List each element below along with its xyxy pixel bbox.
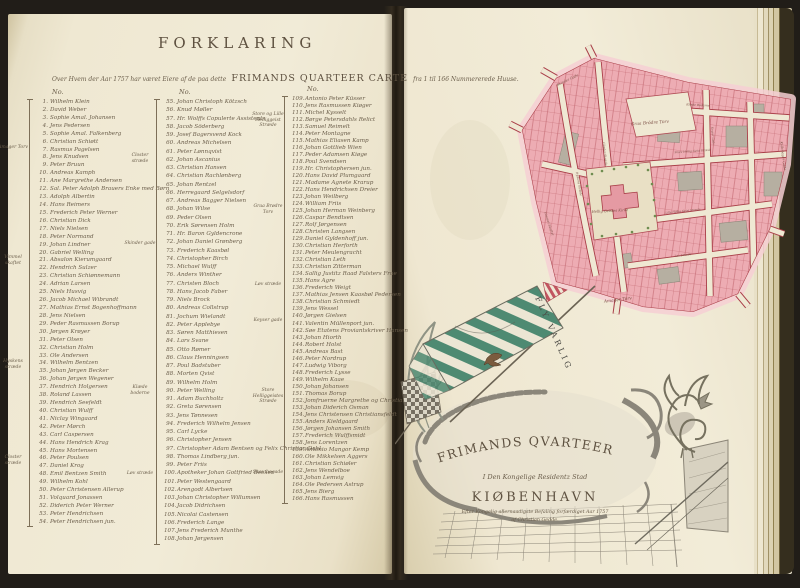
owner-name: Wilhelm Holm	[177, 380, 217, 386]
owner-entry: 49.Wilhelm Kohl	[37, 479, 157, 487]
owner-entry: 105.Nicolai Castensen	[164, 512, 288, 520]
owner-number: 29.	[37, 321, 50, 327]
owner-name: Frederich Peter Werner	[50, 210, 117, 216]
owner-name: Peter Friis	[177, 462, 207, 468]
owner-number: 93.	[164, 413, 177, 419]
owner-number: 37.	[37, 384, 50, 390]
owner-entry: 26.Jacob Michael Wibrandt	[37, 297, 157, 305]
owner-name: Hans Jacob Faber	[177, 289, 227, 295]
owner-number: 77.	[164, 281, 177, 287]
owner-entry: 32.Christian Holm	[37, 345, 157, 353]
owner-name: Samuel Reimelt	[305, 124, 350, 130]
owner-number: 62.	[164, 157, 177, 163]
owner-name: Christen Bloch	[177, 281, 219, 287]
owner-number: 164.	[292, 482, 305, 488]
owner-name: Peder Rasmussen Borup	[50, 321, 119, 327]
owner-number: 20.	[37, 250, 50, 256]
owner-entry: 75.Michael Wulff	[164, 264, 288, 272]
owner-entry: 120.Hans David Plumgaard	[292, 173, 394, 180]
owner-entry: 72.Johan Daniel Grønberg	[164, 239, 288, 247]
owner-name: Niels Brock	[177, 297, 210, 303]
owner-entry: 88.Morten Qvist	[164, 371, 288, 379]
owner-number: 4.	[37, 123, 50, 129]
owner-name: Wilhelm Klein	[50, 99, 90, 105]
owner-entry: 27.Mathias Ernst Bogenhoffmann	[37, 305, 157, 313]
owner-entry: 162.Jens Wendelboe	[292, 468, 394, 475]
owner-name: Poul Badstuber	[177, 363, 220, 369]
owner-name: Søe Etatens Proviantskriver Hansen	[305, 328, 408, 334]
column-number-header: No.	[307, 85, 319, 93]
owner-entry: 66.Herregaard Selgelsdorf	[164, 190, 288, 198]
owner-name: Christian Leth	[305, 257, 346, 263]
owner-entry: 69.Peder Olsen	[164, 215, 288, 223]
owner-entry: 142.Søe Etatens Proviantskriver Hansen	[292, 328, 394, 335]
graabroedretorv-square	[626, 92, 696, 137]
owner-entry: 35.Johan Jørgen Becker	[37, 368, 157, 376]
owner-name: Peter Nordrup	[305, 356, 346, 362]
owner-name: Josef Bagersvend Kock	[177, 132, 242, 138]
owner-name: Niels Nielsen	[50, 226, 88, 232]
owner-number: 79.	[164, 297, 177, 303]
owner-name: Christian Schiøler	[305, 461, 356, 467]
owner-name: Christian Zitterman	[305, 264, 361, 270]
owner-name: Mathias Jensen Kaasbøl Pedersen	[305, 292, 401, 298]
owner-name: Hans Mortensen	[50, 448, 97, 454]
owner-number: 131.	[292, 250, 305, 256]
owner-number: 97.	[164, 446, 177, 452]
owner-name: Thomas Lindberg jun.	[177, 454, 239, 460]
owner-entry: 104.Jacob Didrichsen	[164, 503, 288, 511]
owner-name: Mathias Eliasen Kamp	[305, 138, 369, 144]
owner-entry: 101.Peter Westengaard	[164, 479, 288, 487]
owner-name: Andreas Michelsen	[177, 140, 231, 146]
subtitle-prefix: Over Hvem der Aar 1757 har været Eiere a…	[52, 76, 226, 83]
owner-number: 22.	[37, 265, 50, 271]
owner-name: Jens Rasmussen Kiøger	[305, 103, 372, 109]
owner-name: Johan Daniel Grønberg	[177, 239, 242, 245]
owner-number: 108.	[164, 536, 177, 542]
owner-number: 3.	[37, 115, 50, 121]
owner-name: Christopher Jensen	[177, 437, 232, 443]
owner-entry: 1.Wilhelm Klein	[37, 99, 157, 107]
owner-entry: 116.Johan Gottlieb Wien	[292, 145, 394, 152]
owner-number: 85.	[164, 347, 177, 353]
owner-name: Antonio Mangor Kemp	[305, 447, 369, 453]
owner-name: Jochum Wielandt	[177, 314, 225, 320]
owner-number: 103.	[164, 495, 177, 501]
owner-number: 101.	[164, 479, 177, 485]
owner-name: Emil Bentzen Smith	[50, 471, 106, 477]
owner-number: 155.	[292, 419, 305, 425]
street-group-label: Store og Lille Helliggeist Stræde	[252, 112, 284, 129]
owner-entry: 124.William Friis	[292, 201, 394, 208]
owner-name: Gabriel Welling	[50, 250, 94, 256]
owner-name: Andreas Bagger Nielsen	[177, 198, 246, 204]
owner-number: 163.	[292, 475, 305, 481]
owner-number: 31.	[37, 337, 50, 343]
owner-number: 120.	[292, 173, 305, 179]
owner-name: Peder Adamsen Kiøge	[305, 152, 367, 158]
owner-number: 44.	[37, 440, 50, 446]
owner-number: 113.	[292, 124, 305, 130]
owner-entry: 119.Hr. Christophersen jun.	[292, 166, 394, 173]
owner-entry: 164.Ole Pedersen Astrup	[292, 482, 394, 489]
owner-number: 91.	[164, 396, 177, 402]
owner-number: 73.	[164, 248, 177, 254]
owner-number: 94.	[164, 421, 177, 427]
owner-name: Antonio Peter Küsser	[305, 96, 365, 102]
owner-entry: 121.Madame Agnete Krarup	[292, 180, 394, 187]
owner-number: 38.	[37, 392, 50, 398]
street-group-label: Løv stræde	[124, 471, 156, 477]
owner-number: 66.	[164, 190, 177, 196]
owner-entry: 103.Johan Christopher Willumsen	[164, 495, 288, 503]
owner-name: Wilhelm Kaae	[305, 377, 344, 383]
owner-number: 96.	[164, 437, 177, 443]
owner-number: 41.	[37, 416, 50, 422]
owner-name: Hans Hendrich Krag	[50, 440, 109, 446]
owner-number: 15.	[37, 210, 50, 216]
owner-entry: 108.Johan Jørgensen	[164, 536, 288, 544]
owner-number: 48.	[37, 471, 50, 477]
owner-entry: 85.Otto Rømer	[164, 347, 288, 355]
owner-name: Christian Dick	[50, 218, 91, 224]
owner-entry: 140.Jørgen Gielsen	[292, 313, 394, 320]
owner-entry: 122.Hans Hendrichsen Dreier	[292, 187, 394, 194]
owner-number: 9.	[37, 162, 50, 168]
owner-name: Mathias Ernst Bogenhoffmann	[50, 305, 137, 311]
owner-name: Frederich Wulffsmidt	[305, 433, 365, 439]
owner-number: 8.	[37, 154, 50, 160]
owner-number: 43.	[37, 432, 50, 438]
owner-number: 121.	[292, 180, 305, 186]
column-number-header: No.	[179, 88, 191, 96]
owner-entry: 132.Christian Leth	[292, 257, 394, 264]
owner-entry: 84.Lars Svane	[164, 338, 288, 346]
owner-number: 89.	[164, 380, 177, 386]
owner-number: 61.	[164, 149, 177, 155]
owner-name: Otto Rømer	[177, 347, 210, 353]
owner-entry: 64.Christian Rachlønberg	[164, 173, 288, 181]
owner-number: 78.	[164, 289, 177, 295]
owner-name: Ole Pedersen Astrup	[305, 482, 363, 488]
owner-number: 23.	[37, 273, 50, 279]
owner-entry: 137.Mathias Jensen Kaasbøl Pedersen	[292, 292, 394, 299]
owner-name: Thomas Borup	[305, 391, 346, 397]
owner-number: 156.	[292, 426, 305, 432]
owner-entry: 155.Anders Kieldgaard	[292, 419, 394, 426]
owner-number: 12.	[37, 186, 50, 192]
column-bracket	[156, 100, 160, 544]
owner-number: 142.	[292, 328, 305, 334]
owner-number: 98.	[164, 454, 177, 460]
owner-number: 28.	[37, 313, 50, 319]
owner-name: Hendrich Holgersen	[50, 384, 108, 390]
owner-entry: 3.Sophie Amal. Johansen	[37, 115, 157, 123]
owner-number: 114.	[292, 131, 305, 137]
owner-name: Roland Lassen	[50, 392, 91, 398]
owner-name: Johan Jørgensen	[177, 536, 224, 542]
owner-number: 30.	[37, 329, 50, 335]
owner-name: Michel Kysselt	[305, 110, 346, 116]
owner-number: 76.	[164, 272, 177, 278]
owner-entry: 114.Peter Montagne	[292, 131, 394, 138]
owner-name: Jens Nielsen	[50, 313, 85, 319]
owner-name: Nicolai Castensen	[177, 512, 228, 518]
owner-number: 53.	[37, 511, 50, 517]
owner-number: 105.	[164, 512, 177, 518]
subtitle-emphasis: FRIMANDS QUARTEER CARTE	[231, 73, 408, 84]
owner-name: Anders Kieldgaard	[305, 419, 358, 425]
owner-entry: 53.Peter Hendrichsen	[37, 511, 157, 519]
owner-entry: 118.Poul Svendsen	[292, 159, 394, 166]
subtitle-line: Over Hvem der Aar 1757 har været Eiere a…	[52, 66, 519, 85]
owner-name: Peter Hendrichsen jun.	[50, 519, 116, 525]
street-group-label: Løv stræde	[252, 282, 284, 288]
owner-name: Peter Christensen Allerup	[50, 487, 124, 493]
owner-entry: 143.Johan Hiorth	[292, 335, 394, 342]
owner-number: 35.	[37, 368, 50, 374]
owner-name: Hans Hendrichsen Dreier	[305, 187, 378, 193]
owner-name: Anders Winther	[177, 272, 222, 278]
owner-entry: 131.Peter Meulengracht	[292, 250, 394, 257]
owner-entry: 28.Jens Nielsen	[37, 313, 157, 321]
owner-number: 128.	[292, 229, 305, 235]
owner-entry: 126.Caspar Bendtsen	[292, 215, 394, 222]
owner-entry: 29.Peder Rasmussen Borup	[37, 321, 157, 329]
owner-number: 112.	[292, 117, 305, 123]
owner-entry: 60.Andreas Michelsen	[164, 140, 288, 148]
owner-number: 159.	[292, 447, 305, 453]
owner-number: 127.	[292, 222, 305, 228]
owner-name: Adam Buchholtz	[177, 396, 223, 402]
owner-number: 123.	[292, 194, 305, 200]
owner-entry: 12.Sal. Peter Adolph Brauers Enke med Bø…	[37, 186, 157, 194]
owner-name: Christian Holm	[50, 345, 93, 351]
owner-entry: 42.Peter Mørch	[37, 424, 157, 432]
owner-name: Jens Tønnesen	[177, 413, 218, 419]
owner-name: Frederich Kaasbøl	[177, 248, 229, 254]
owner-entry: 54.Peter Hendrichsen jun.	[37, 519, 157, 527]
owner-name: Sallig Justitz Raad Falsters Frue	[305, 271, 397, 277]
cartouche-city: KIØBENHAVN	[472, 490, 599, 505]
owner-name: Jacob Söderberg	[177, 124, 224, 130]
owner-name: Johan Johansen	[305, 384, 349, 390]
owner-number: 166.	[292, 496, 305, 502]
owner-entry: 165.Jens Bierg	[292, 489, 394, 496]
owner-entry: 5.Sophie Amal. Falkenberg	[37, 131, 157, 139]
owner-number: 149.	[292, 377, 305, 383]
owner-number: 152.	[292, 398, 305, 404]
owner-entry: 130.Christian Herforth	[292, 243, 394, 250]
owner-entry: 96.Christopher Jensen	[164, 437, 288, 445]
owner-name: Jørgen Krøyer	[50, 329, 90, 335]
owner-number: 99.	[164, 462, 177, 468]
owner-number: 151.	[292, 391, 305, 397]
owner-name: Peter Normand	[50, 234, 94, 240]
owner-number: 63.	[164, 165, 177, 171]
owner-number: 69.	[164, 215, 177, 221]
owner-number: 124.	[292, 201, 305, 207]
owner-number: 161.	[292, 461, 305, 467]
owner-entry: 98.Thomas Lindberg jun.	[164, 454, 288, 462]
owner-name: Christian Schiøtt	[50, 139, 98, 145]
owner-entry: 141.Valentin Müllenport jun.	[292, 321, 394, 328]
owner-number: 24.	[37, 281, 50, 287]
owner-name: Jørgen Johansen Smith	[305, 426, 370, 432]
owner-entry: 17.Niels Nielsen	[37, 226, 157, 234]
street-group-label: Store Helliggeistes Stræde	[252, 388, 284, 405]
owner-entry: 30.Jørgen Krøyer	[37, 329, 157, 337]
owner-number: 47.	[37, 463, 50, 469]
owner-number: 71.	[164, 231, 177, 237]
owner-number: 137.	[292, 292, 305, 298]
owner-number: 6.	[37, 139, 50, 145]
owner-name: Andreas Collstrup	[177, 305, 228, 311]
owner-number: 82.	[164, 322, 177, 328]
owner-name: Frederich Wilhelm Jensen	[177, 421, 251, 427]
owner-name: Christian Hansen	[177, 165, 227, 171]
owner-name: Johan Jørgen Becker	[50, 368, 108, 374]
owner-entry: 36.Johan Jørgen Wegener	[37, 376, 157, 384]
owner-number: 25.	[37, 289, 50, 295]
owner-name: Jens Pedersen	[50, 123, 90, 129]
owner-number: 132.	[292, 257, 305, 263]
owner-number: 116.	[292, 145, 305, 151]
owner-entry: 117.Peder Adamsen Kiøge	[292, 152, 394, 159]
owner-number: 95.	[164, 429, 177, 435]
owner-name: Frederich Lysse	[305, 370, 351, 376]
owner-number: 143.	[292, 335, 305, 341]
owner-number: 58.	[164, 124, 177, 130]
owner-entry: 139.Jens Wessel	[292, 306, 394, 313]
owner-number: 92.	[164, 404, 177, 410]
owner-number: 40.	[37, 408, 50, 414]
owner-name: Ole Mikkelsen Aggers	[305, 454, 367, 460]
owner-entry: 52.Diderich Peter Werner	[37, 503, 157, 511]
owner-name: Jens Lorentzen	[305, 440, 348, 446]
owner-entry: 34.Wilhelm Bentzen	[37, 360, 157, 368]
owner-name: Jens Christensen Christiansfeldt	[305, 412, 397, 418]
owner-number: 39.	[37, 400, 50, 406]
owner-name: Volquard Jonassen	[50, 495, 102, 501]
owner-number: 33.	[37, 353, 50, 359]
owner-number: 21.	[37, 257, 50, 263]
owner-name: Peter Olsen	[50, 337, 83, 343]
cartouche-credit1: Efter Kongelig allernaadigste Befaling f…	[461, 509, 610, 515]
owner-name: Hr. Christophersen jun.	[305, 166, 372, 172]
owner-number: 102.	[164, 487, 177, 493]
owner-entry: 110.Jens Rasmussen Kiøger	[292, 103, 394, 110]
owner-entry: 71.Hr. Baron Gyldencrone	[164, 231, 288, 239]
owner-name: Hans David Plumgaard	[305, 173, 371, 179]
owner-name: Jens Frederich Munthe	[177, 528, 243, 534]
owner-name: Jens Wessel	[305, 306, 338, 312]
owner-entry: 55.Johan Christoph Kötzsch	[164, 99, 288, 107]
owner-entry: 43.Carl Caspersen	[37, 432, 157, 440]
owner-number: 11.	[37, 178, 50, 184]
owner-name: Christopher Birch	[177, 256, 228, 262]
owner-number: 14.	[37, 202, 50, 208]
owner-number: 111.	[292, 110, 305, 116]
owner-number: 145.	[292, 349, 305, 355]
owner-name: Daniel Gyldenhoff jun.	[305, 236, 368, 242]
owner-entry: 4.Jens Pedersen	[37, 123, 157, 131]
owner-name: Caspar Bendtsen	[305, 215, 354, 221]
owner-entry: 25.Niels Husvig	[37, 289, 157, 297]
owner-name: Daniel Krog	[50, 463, 84, 469]
owner-name: Christen Langsen	[305, 229, 355, 235]
owner-name: Ane Margrethe Andersen	[50, 178, 122, 184]
owner-entry: 149.Wilhelm Kaae	[292, 377, 394, 384]
owner-entry: 80.Andreas Collstrup	[164, 305, 288, 313]
owner-entry: 39.Hendrich Seefeldt	[37, 400, 157, 408]
owner-number: 64.	[164, 173, 177, 179]
owner-name: Johan Hiorth	[305, 335, 342, 341]
owner-name: Johan Christoph Kötzsch	[177, 99, 247, 105]
owner-entry: 161.Christian Schiøler	[292, 461, 394, 468]
owner-entry: 153.Johan Diderich Osman	[292, 405, 394, 412]
owner-entry: 111.Michel Kysselt	[292, 110, 394, 117]
owner-number: 16.	[37, 218, 50, 224]
owner-name: Jens Wendelboe	[305, 468, 350, 474]
owner-number: 147.	[292, 363, 305, 369]
owner-number: 65.	[164, 182, 177, 188]
street-group-label: Skinder gade	[124, 241, 156, 247]
owner-name: Jacob Didrichsen	[177, 503, 225, 509]
owner-name: Hendrich Seefeldt	[50, 400, 102, 406]
owner-name: Arengodt Albertsen	[177, 487, 233, 493]
owner-entry: 45.Hans Mortensen	[37, 448, 157, 456]
owner-name: Andreas Kamph	[50, 170, 95, 176]
owner-entry: 138.Christian Schmiedt	[292, 299, 394, 306]
owner-name: Hans Agre	[305, 278, 335, 284]
owner-name: Johan Lemvig	[305, 475, 344, 481]
owner-entry: 147.Ludwig Viborg	[292, 363, 394, 370]
owner-number: 51.	[37, 495, 50, 501]
owner-number: 57.	[164, 116, 177, 122]
owner-number: 42.	[37, 424, 50, 430]
owner-entry: 78.Hans Jacob Faber	[164, 289, 288, 297]
owner-name: Peter Bruun	[50, 162, 84, 168]
owner-entry: 144.Robert Holst	[292, 342, 394, 349]
owner-number: 100.	[164, 470, 177, 476]
owner-entry: 50.Peter Christensen Allerup	[37, 487, 157, 495]
street-group-label: Graa Brødre Torv	[252, 204, 284, 215]
owner-name: Valentin Müllenport jun.	[305, 321, 374, 327]
owner-entry: 135.Hans Agre	[292, 278, 394, 285]
owner-number: 19.	[37, 242, 50, 248]
owner-number: 49.	[37, 479, 50, 485]
owner-name: Peder Olsen	[177, 215, 211, 221]
owner-entry: 20.Gabriel Welling	[37, 250, 157, 258]
owner-entry: 159.Antonio Mangor Kemp	[292, 447, 394, 454]
owner-number: 34.	[37, 360, 50, 366]
owner-number: 74.	[164, 256, 177, 262]
owner-number: 84.	[164, 338, 177, 344]
owner-name: Hans Rasmussen	[305, 496, 354, 502]
owner-entry: 46.Peter Poulsen	[37, 455, 157, 463]
owner-entry: 74.Christopher Birch	[164, 256, 288, 264]
owner-entry: 128.Christen Langsen	[292, 229, 394, 236]
owner-name: Diderich Peter Werner	[50, 503, 114, 509]
owner-name: Absalon Kierumgaard	[50, 257, 112, 263]
owner-entry: 44.Hans Hendrich Krag	[37, 440, 157, 448]
owner-name: Madame Agnete Krarup	[305, 180, 373, 186]
owner-entry: 115.Mathias Eliasen Kamp	[292, 138, 394, 145]
owner-number: 139.	[292, 306, 305, 312]
owner-name: Wilhelm Kohl	[50, 479, 88, 485]
